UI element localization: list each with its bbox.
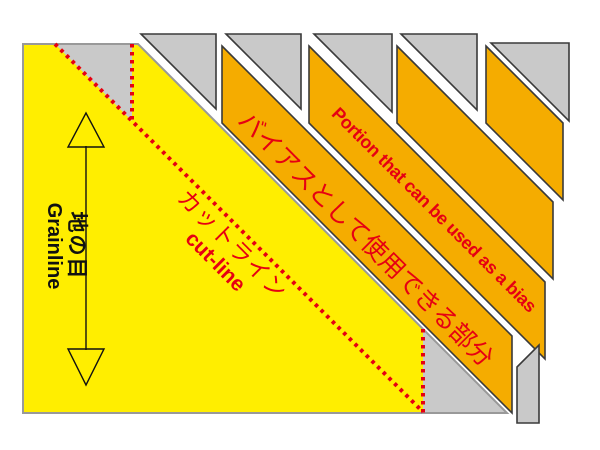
- diagram-canvas: [0, 0, 600, 450]
- strip-end-piece-bottom-right: [517, 345, 539, 423]
- bias-cutting-diagram: 地の目 Grainline カットライン cut-line バイアスとして使用で…: [0, 0, 600, 450]
